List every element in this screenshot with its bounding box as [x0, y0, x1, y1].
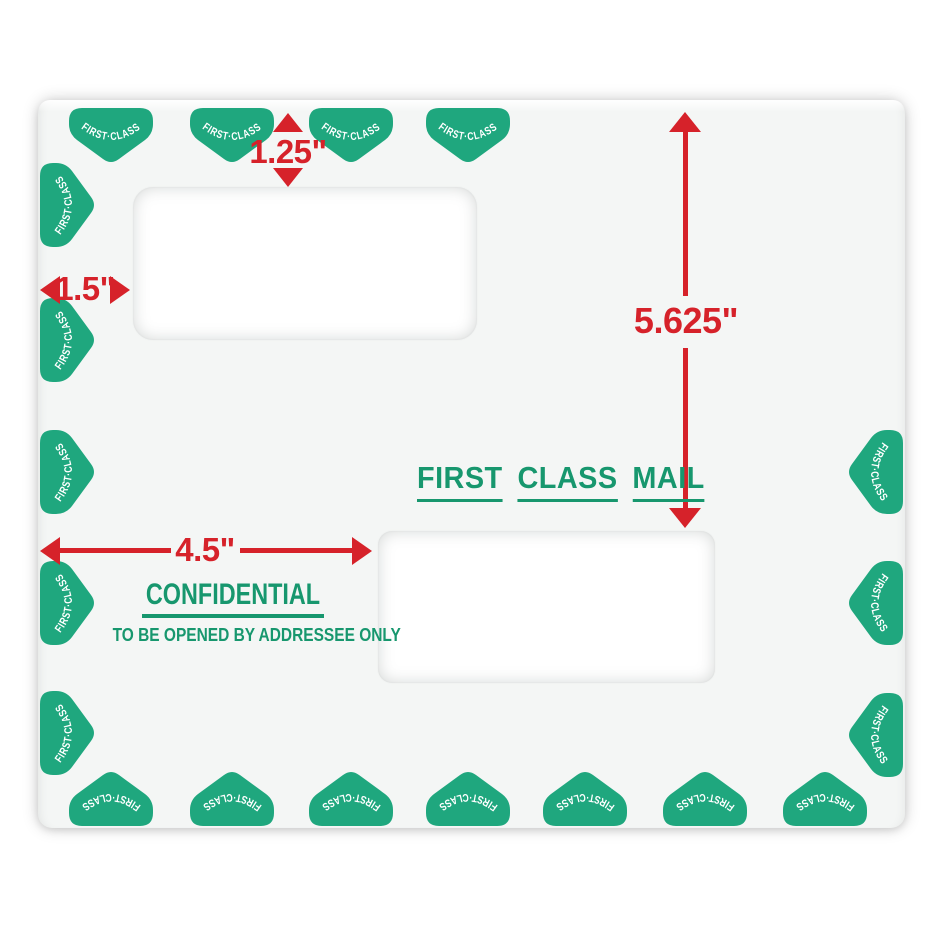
svg-text:FIRST·CLASS: FIRST·CLASS [319, 121, 383, 143]
confidential-marking: CONFIDENTIAL TO BE OPENED BY ADDRESSEE O… [93, 578, 373, 646]
first-class-stamp: FIRST·CLASS [40, 560, 98, 646]
svg-text:FIRST·CLASS: FIRST·CLASS [436, 121, 500, 143]
arrowhead-right-icon [110, 276, 130, 304]
svg-text:FIRST·CLASS: FIRST·CLASS [53, 173, 75, 237]
first-class-stamp: FIRST·CLASS [845, 692, 903, 778]
first-class-stamp: FIRST·CLASS [425, 108, 511, 166]
address-window-bottom [378, 531, 715, 683]
svg-text:FIRST·CLASS: FIRST·CLASS [53, 701, 75, 765]
confidential-underline [142, 614, 324, 618]
svg-text:FIRST·CLASS: FIRST·CLASS [868, 571, 890, 635]
confidential-title: CONFIDENTIAL [124, 578, 342, 612]
first-class-stamp: FIRST·CLASS [68, 768, 154, 826]
svg-text:FIRST·CLASS: FIRST·CLASS [200, 791, 264, 813]
first-class-stamp: FIRST·CLASS [40, 690, 98, 776]
svg-text:FIRST·CLASS: FIRST·CLASS [553, 791, 617, 813]
dimension-label-window-left-offset: 1.5" [55, 270, 115, 308]
dimension-line [240, 548, 353, 553]
first-class-mail-marking: FIRST CLASS MAIL [417, 460, 705, 502]
first-class-mail-word: FIRST [417, 460, 503, 502]
first-class-stamp: FIRST·CLASS [40, 429, 98, 515]
dimension-label-window-bottom-left-offset: 4.5" [175, 531, 235, 569]
first-class-stamp: FIRST·CLASS [845, 560, 903, 646]
address-window-top [133, 187, 477, 340]
svg-text:FIRST·CLASS: FIRST·CLASS [53, 571, 75, 635]
first-class-stamp: FIRST·CLASS [425, 768, 511, 826]
svg-text:FIRST·CLASS: FIRST·CLASS [436, 791, 500, 813]
svg-text:FIRST·CLASS: FIRST·CLASS [79, 121, 143, 143]
svg-text:FIRST·CLASS: FIRST·CLASS [673, 791, 737, 813]
first-class-stamp: FIRST·CLASS [308, 768, 394, 826]
first-class-stamp: FIRST·CLASS [662, 768, 748, 826]
svg-text:FIRST·CLASS: FIRST·CLASS [319, 791, 383, 813]
dimension-line [683, 130, 688, 296]
svg-text:FIRST·CLASS: FIRST·CLASS [53, 308, 75, 372]
first-class-stamp: FIRST·CLASS [782, 768, 868, 826]
envelope: FIRST·CLASS FIRST·CLASS FIRST·CLASS FIRS… [38, 100, 905, 828]
first-class-stamp: FIRST·CLASS [845, 429, 903, 515]
dimension-line [58, 548, 171, 553]
addressee-notice: TO BE OPENED BY ADDRESSEE ONLY [113, 625, 354, 646]
first-class-mail-word: MAIL [632, 460, 704, 502]
first-class-stamp: FIRST·CLASS [542, 768, 628, 826]
dimension-label-window-top-offset: 1.25" [249, 133, 326, 171]
dimension-label-right-height: 5.625" [634, 300, 738, 342]
svg-text:FIRST·CLASS: FIRST·CLASS [868, 440, 890, 504]
arrowhead-up-icon [669, 112, 701, 132]
envelope-product-image: FIRST·CLASS FIRST·CLASS FIRST·CLASS FIRS… [0, 0, 940, 940]
svg-text:FIRST·CLASS: FIRST·CLASS [868, 703, 890, 767]
svg-text:FIRST·CLASS: FIRST·CLASS [53, 440, 75, 504]
arrowhead-left-icon [40, 537, 60, 565]
arrowhead-down-icon [273, 168, 303, 187]
first-class-stamp: FIRST·CLASS [40, 162, 98, 248]
arrowhead-down-icon [669, 508, 701, 528]
arrowhead-right-icon [352, 537, 372, 565]
first-class-mail-word: CLASS [517, 460, 617, 502]
first-class-stamp: FIRST·CLASS [189, 768, 275, 826]
first-class-stamp: FIRST·CLASS [40, 297, 98, 383]
svg-text:FIRST·CLASS: FIRST·CLASS [793, 791, 857, 813]
first-class-stamp: FIRST·CLASS [68, 108, 154, 166]
svg-text:FIRST·CLASS: FIRST·CLASS [79, 791, 143, 813]
arrowhead-up-icon [273, 113, 303, 132]
